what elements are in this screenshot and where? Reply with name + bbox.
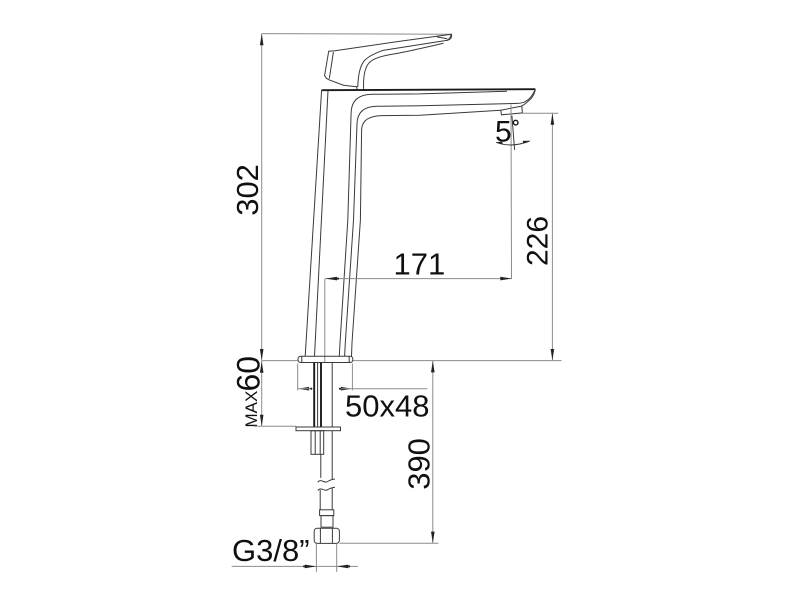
svg-text:226: 226 — [522, 216, 555, 266]
svg-text:50x48: 50x48 — [345, 388, 429, 423]
svg-text:5: 5 — [495, 116, 512, 149]
svg-text:171: 171 — [394, 247, 446, 282]
svg-text:60: 60 — [231, 356, 267, 392]
svg-text:G3/8”: G3/8” — [232, 533, 310, 568]
svg-text:MAX: MAX — [242, 391, 261, 428]
svg-text:390: 390 — [402, 438, 437, 490]
svg-text:302: 302 — [230, 164, 265, 216]
